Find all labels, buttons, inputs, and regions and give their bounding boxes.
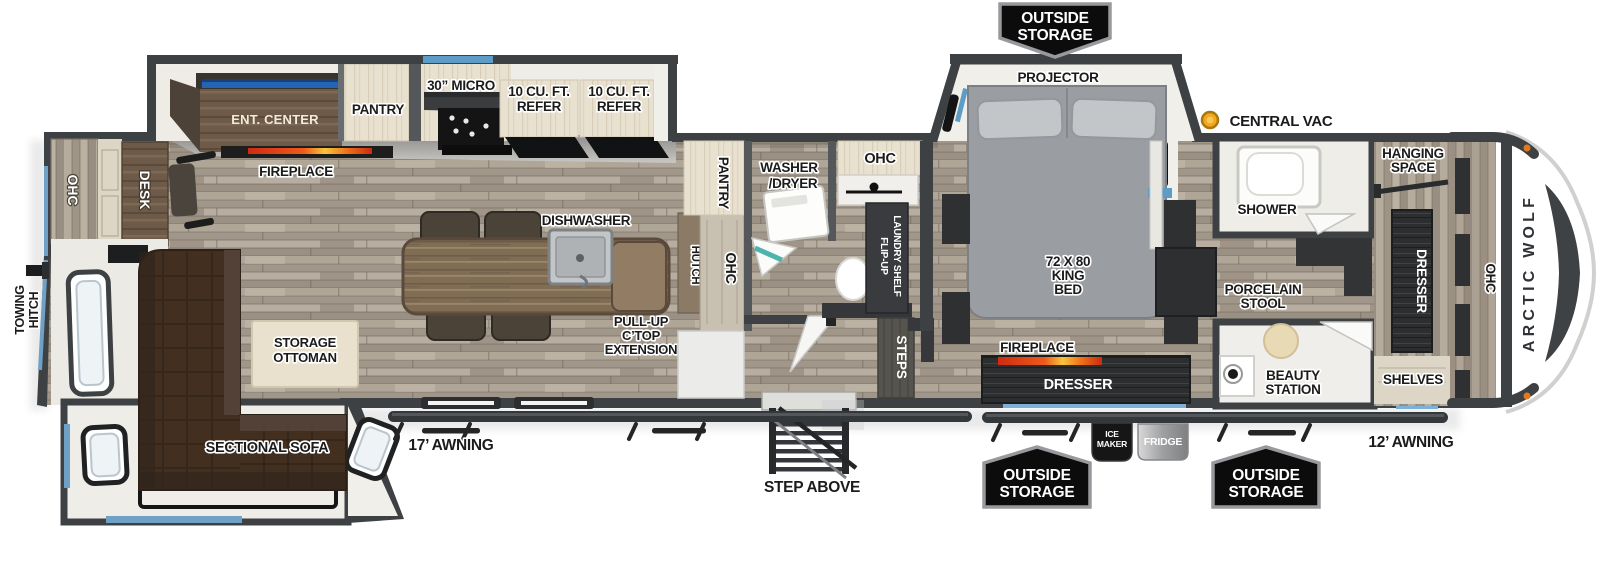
svg-text:CENTRAL VAC: CENTRAL VAC — [1230, 113, 1333, 130]
svg-text:SPACE: SPACE — [1391, 160, 1435, 175]
svg-text:PULL-UP: PULL-UP — [614, 314, 669, 329]
svg-text:STORAGE: STORAGE — [274, 335, 337, 350]
svg-text:C’TOP: C’TOP — [622, 328, 661, 343]
svg-text:BEAUTY: BEAUTY — [1266, 368, 1320, 383]
svg-text:DRESSER: DRESSER — [1044, 377, 1113, 393]
svg-text:LAUNDRY SHELF: LAUNDRY SHELF — [891, 215, 902, 296]
svg-text:DISHWASHER: DISHWASHER — [542, 213, 631, 228]
svg-text:DRESSER: DRESSER — [1414, 249, 1429, 313]
svg-text:PANTRY: PANTRY — [352, 102, 404, 117]
svg-text:SECTIONAL SOFA: SECTIONAL SOFA — [206, 440, 330, 456]
svg-text:FIREPLACE: FIREPLACE — [259, 164, 333, 179]
svg-text:REFER: REFER — [597, 99, 642, 114]
svg-text:ENT. CENTER: ENT. CENTER — [231, 112, 319, 127]
svg-text:FRIDGE: FRIDGE — [1144, 436, 1183, 448]
svg-text:PROJECTOR: PROJECTOR — [1017, 70, 1099, 85]
svg-text:STOOL: STOOL — [1241, 296, 1286, 311]
svg-text:OUTSIDE: OUTSIDE — [1003, 467, 1071, 484]
svg-text:OTTOMAN: OTTOMAN — [273, 350, 336, 365]
svg-text:HANGING: HANGING — [1382, 146, 1444, 161]
svg-text:/DRYER: /DRYER — [769, 176, 818, 191]
svg-text:REFER: REFER — [517, 99, 562, 114]
svg-text:30” MICRO: 30” MICRO — [427, 78, 495, 93]
svg-text:SHELVES: SHELVES — [1383, 372, 1443, 387]
svg-text:SHOWER: SHOWER — [1238, 202, 1298, 217]
svg-text:OHC: OHC — [864, 151, 896, 167]
svg-text:STORAGE: STORAGE — [1229, 484, 1304, 501]
svg-text:PORCELAIN: PORCELAIN — [1225, 282, 1302, 297]
svg-text:STEPS: STEPS — [894, 335, 909, 378]
svg-text:ICE: ICE — [1105, 429, 1119, 439]
svg-text:HUTCH: HUTCH — [689, 246, 701, 285]
svg-text:STEP ABOVE: STEP ABOVE — [764, 479, 860, 496]
svg-text:72 X 80: 72 X 80 — [1046, 254, 1090, 269]
svg-text:OUTSIDE: OUTSIDE — [1232, 467, 1300, 484]
svg-text:17’ AWNING: 17’ AWNING — [408, 437, 493, 454]
svg-text:MAKER: MAKER — [1097, 439, 1127, 449]
svg-text:OUTSIDE: OUTSIDE — [1021, 10, 1089, 27]
svg-text:STATION: STATION — [1265, 382, 1320, 397]
svg-text:TOWING: TOWING — [13, 285, 27, 334]
svg-text:HITCH: HITCH — [27, 291, 41, 328]
svg-text:KING: KING — [1052, 268, 1085, 283]
svg-text:OHC: OHC — [1483, 263, 1498, 293]
svg-text:EXTENSION: EXTENSION — [605, 342, 677, 357]
svg-text:STORAGE: STORAGE — [1018, 27, 1093, 44]
svg-text:BED: BED — [1054, 282, 1082, 297]
svg-text:PANTRY: PANTRY — [716, 157, 731, 209]
svg-text:10 CU. FT.: 10 CU. FT. — [508, 84, 570, 99]
svg-text:OHC: OHC — [65, 174, 81, 205]
svg-text:ARCTIC WOLF: ARCTIC WOLF — [1521, 194, 1538, 352]
svg-text:WASHER: WASHER — [760, 160, 818, 175]
svg-text:OHC: OHC — [722, 252, 738, 284]
svg-text:10 CU. FT.: 10 CU. FT. — [588, 84, 650, 99]
svg-text:STORAGE: STORAGE — [1000, 484, 1075, 501]
svg-text:FIREPLACE: FIREPLACE — [1000, 340, 1074, 355]
svg-text:12’ AWNING: 12’ AWNING — [1368, 434, 1453, 451]
svg-text:FLIP-UP: FLIP-UP — [878, 237, 889, 275]
svg-text:DESK: DESK — [137, 171, 153, 210]
